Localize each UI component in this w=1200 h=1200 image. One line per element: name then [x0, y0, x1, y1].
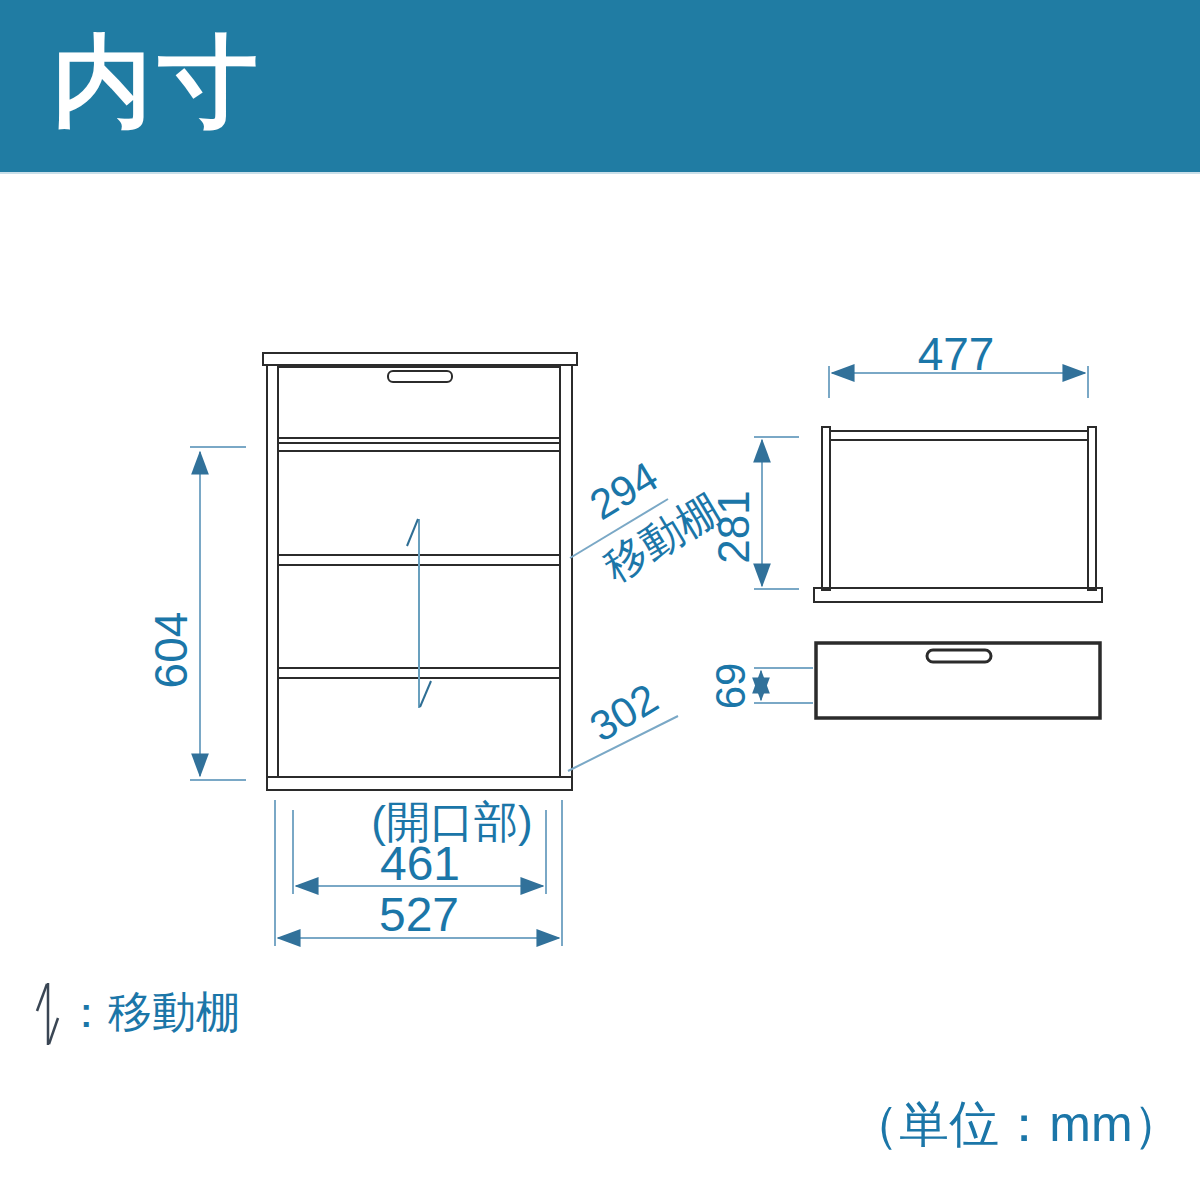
dim-281-label: 281 — [712, 490, 756, 563]
cabinet-drawer-handle-slot — [388, 371, 452, 382]
unit-note: （単位：mm） — [849, 1099, 1182, 1149]
drawer-view — [816, 643, 1100, 718]
movable-shelf-arrow — [407, 519, 431, 708]
movable-shelf-arrow-head-bottom — [420, 681, 431, 707]
back-frame-view — [814, 427, 1102, 602]
cabinet-rail-under-drawer — [278, 443, 560, 451]
dim-69-label: 69 — [710, 663, 752, 710]
dim-477-label: 477 — [918, 331, 995, 377]
frame-left-post — [822, 427, 830, 590]
cabinet-top-board — [263, 353, 577, 365]
cabinet-drawer-front — [278, 367, 560, 438]
legend-label: ：移動棚 — [64, 990, 240, 1034]
frame-bottom-board — [814, 588, 1102, 602]
frame-right-post — [1088, 427, 1096, 590]
dim-527-label: 527 — [379, 891, 459, 939]
legend-arrow-head-bottom — [49, 1018, 58, 1044]
drawer-handle-slot — [927, 650, 991, 662]
legend-arrow-head-top — [37, 984, 47, 1011]
movable-shelf-arrow-head-top — [407, 519, 418, 546]
dim-604-label: 604 — [148, 612, 194, 689]
legend-arrow-icon — [37, 983, 58, 1045]
frame-top-bar — [830, 431, 1088, 440]
dim-461-label: 461 — [380, 840, 460, 888]
drawer-outline — [816, 643, 1100, 718]
page: 内寸 — [0, 0, 1200, 1200]
